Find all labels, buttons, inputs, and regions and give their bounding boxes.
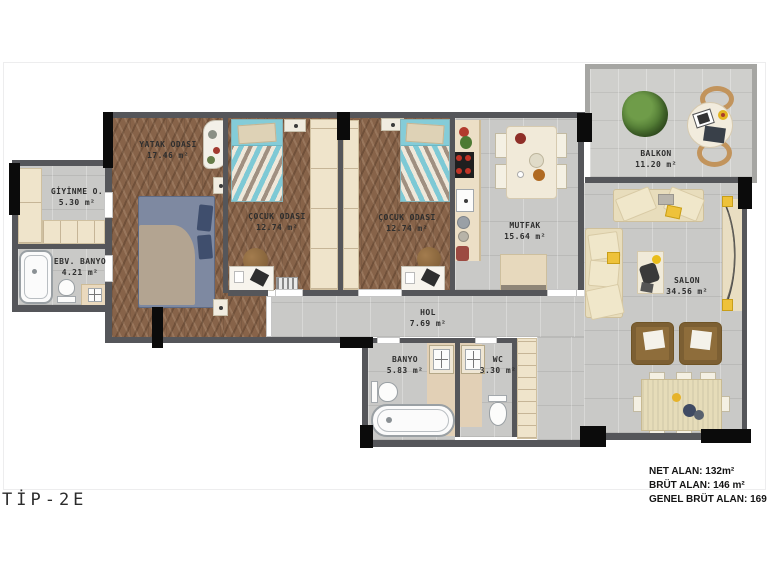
toilet xyxy=(58,279,75,296)
net-area: NET ALAN: 132m² xyxy=(649,465,768,479)
bed-pillow xyxy=(405,123,444,145)
column xyxy=(340,337,373,348)
door-opening xyxy=(275,289,303,297)
bathroom-sink xyxy=(429,345,454,374)
room-label-mutfak: MUTFAK 15.64 m² xyxy=(504,220,546,242)
wall xyxy=(338,117,343,293)
door-opening xyxy=(104,192,113,218)
room-name: MUTFAK xyxy=(504,220,546,231)
desk-papers xyxy=(640,282,653,293)
room-name: GİYİNME O. xyxy=(51,186,103,197)
wall xyxy=(343,290,358,296)
column xyxy=(738,177,752,209)
flower-pot xyxy=(457,127,473,151)
balcony-table xyxy=(687,102,733,148)
room-name: ÇOCUK ODASI xyxy=(378,212,435,223)
burner xyxy=(456,155,462,161)
nightstand xyxy=(213,299,228,316)
wall xyxy=(402,290,455,296)
wall xyxy=(15,244,110,249)
burner xyxy=(456,168,462,174)
door-opening xyxy=(377,337,400,344)
dresser-decor xyxy=(207,156,215,164)
plan-type-label: TİP-2E xyxy=(2,490,87,510)
toilet-tank xyxy=(371,381,378,403)
laptop xyxy=(703,126,726,144)
desk xyxy=(229,266,274,291)
balcony-wall xyxy=(585,64,590,117)
faucet-cross xyxy=(467,359,480,360)
wall xyxy=(303,290,343,296)
wall xyxy=(12,160,111,166)
sofa-cushion xyxy=(615,186,657,222)
room-label-salon: SALON 34.56 m² xyxy=(666,275,708,297)
bowl xyxy=(515,133,526,144)
room-area: 4.21 m² xyxy=(54,267,106,278)
wall xyxy=(223,117,228,293)
genel-brut-area: GENEL BRÜT ALAN: 169 m² xyxy=(649,493,768,507)
single-bed xyxy=(231,119,283,202)
room-label-balkon: BALKON 11.20 m² xyxy=(635,148,677,170)
kitchen-island xyxy=(500,254,547,291)
room-area: 5.83 m² xyxy=(387,365,424,376)
room-name: BANYO xyxy=(387,354,424,365)
bathtub xyxy=(371,404,455,437)
faucet-cross xyxy=(435,359,448,360)
toilet-tank xyxy=(488,395,507,402)
kitchen-jar xyxy=(458,231,469,242)
area-summary: NET ALAN: 132m² BRÜT ALAN: 146 m² GENEL … xyxy=(649,465,768,507)
drain xyxy=(32,269,37,274)
laptop xyxy=(421,268,440,287)
room-label-cocuk-odasi-1: ÇOCUK ODASI 12.74 m² xyxy=(248,211,305,233)
wall xyxy=(362,440,593,447)
room-area: 5.30 m² xyxy=(51,197,103,208)
door-opening xyxy=(266,296,272,337)
room-name: EBV. BANYO xyxy=(54,256,106,267)
desk-lamp xyxy=(652,255,661,264)
closet xyxy=(18,168,42,244)
room-label-giyinme: GİYİNME O. 5.30 m² xyxy=(51,186,103,208)
room-area: 12.74 m² xyxy=(378,223,435,234)
column xyxy=(152,307,163,348)
room-name: HOL xyxy=(410,307,447,318)
hall-cabinet xyxy=(517,338,537,439)
dresser-decor xyxy=(213,147,220,154)
bed-pillow xyxy=(237,123,276,145)
toilet-tank xyxy=(57,296,76,303)
work-desk xyxy=(637,251,664,294)
frame-photo xyxy=(697,113,710,125)
room-area: 3.30 m² xyxy=(480,365,517,376)
potted-plant xyxy=(622,91,668,137)
flower xyxy=(718,110,728,120)
wall xyxy=(578,118,584,290)
room-name: WC xyxy=(480,354,517,365)
room-area: 34.56 m² xyxy=(666,286,708,297)
room-area: 17.46 m² xyxy=(139,150,196,161)
room-name: BALKON xyxy=(635,148,677,159)
wall-shelf xyxy=(284,119,306,132)
side-table xyxy=(658,194,674,205)
notebook xyxy=(234,271,244,283)
wall xyxy=(450,117,455,293)
burner xyxy=(465,155,471,161)
yellow-decor xyxy=(722,196,733,207)
wall xyxy=(400,338,475,343)
column xyxy=(577,113,592,142)
toilet xyxy=(378,382,398,402)
stove xyxy=(453,152,474,178)
sink-basin xyxy=(88,288,102,302)
armchair xyxy=(631,322,674,365)
bathtub-inner xyxy=(24,255,48,299)
faucet-cross xyxy=(89,294,101,295)
dining-table xyxy=(641,379,722,431)
closet xyxy=(42,220,105,244)
fruit-bowl xyxy=(533,169,545,181)
wardrobe xyxy=(343,120,359,290)
room-label-wc: WC 3.30 m² xyxy=(480,354,517,376)
balcony-wall xyxy=(752,64,757,183)
cup xyxy=(517,171,524,178)
brut-area: BRÜT ALAN: 146 m² xyxy=(649,479,768,493)
wall xyxy=(455,343,460,437)
armchair-pillow xyxy=(690,330,712,350)
chaise-sofa xyxy=(585,228,623,318)
plant-leaves xyxy=(460,136,472,149)
drain xyxy=(386,417,392,423)
laptop xyxy=(250,268,269,287)
kitchen-table xyxy=(506,126,557,199)
room-name: SALON xyxy=(666,275,708,286)
room-label-yatak-odasi: YATAK ODASI 17.46 m² xyxy=(139,139,196,161)
notebook xyxy=(405,272,415,284)
room-label-cocuk-odasi-2: ÇOCUK ODASI 12.74 m² xyxy=(378,212,435,234)
kitchen-sink xyxy=(456,189,474,212)
burner xyxy=(465,168,471,174)
room-area: 15.64 m² xyxy=(504,231,546,242)
floor-plan: YATAK ODASI 17.46 m² GİYİNME O. 5.30 m² … xyxy=(0,0,768,576)
door-opening xyxy=(358,289,402,297)
bed-throw-blanket xyxy=(139,225,195,305)
room-area: 11.20 m² xyxy=(635,159,677,170)
plate xyxy=(529,153,544,168)
door-opening xyxy=(547,289,577,297)
dresser-decor xyxy=(208,130,217,139)
room-name: ÇOCUK ODASI xyxy=(248,211,305,222)
armchair xyxy=(679,322,722,365)
flower-center xyxy=(721,113,725,117)
table-decor xyxy=(672,393,681,402)
column xyxy=(701,429,751,443)
yellow-pillow xyxy=(665,205,682,220)
column xyxy=(580,426,606,447)
faucet-cross xyxy=(94,289,95,301)
bathroom-sink xyxy=(81,284,108,306)
bed-pillow xyxy=(197,204,214,231)
wall xyxy=(228,290,268,296)
room-label-banyo: BANYO 5.83 m² xyxy=(387,354,424,376)
single-bed xyxy=(400,119,450,202)
door-opening xyxy=(475,337,497,344)
floor-corridor xyxy=(223,293,268,337)
yellow-decor xyxy=(722,299,733,311)
column xyxy=(360,425,373,448)
double-bed xyxy=(138,196,215,308)
armchair-pillow xyxy=(643,330,665,351)
wall xyxy=(585,177,752,183)
toilet xyxy=(489,402,507,426)
room-label-hol: HOL 7.69 m² xyxy=(410,307,447,329)
yellow-pillow xyxy=(607,252,620,264)
room-label-ebv-banyo: EBV. BANYO 4.21 m² xyxy=(54,256,106,278)
wall xyxy=(455,290,547,296)
balcony-wall xyxy=(585,64,757,69)
bathtub xyxy=(19,250,53,304)
wall xyxy=(12,305,110,312)
dining-chair xyxy=(721,396,730,412)
sofa-chaise xyxy=(585,284,624,320)
desk xyxy=(401,266,445,292)
kitchen-jar xyxy=(457,216,470,229)
bed-pillow xyxy=(197,234,213,259)
table-decor xyxy=(694,410,704,420)
column xyxy=(337,112,350,140)
wardrobe xyxy=(310,119,338,290)
room-area: 7.69 m² xyxy=(410,318,447,329)
room-name: YATAK ODASI xyxy=(139,139,196,150)
column xyxy=(9,163,20,215)
wall xyxy=(105,337,362,343)
room-area: 12.74 m² xyxy=(248,222,305,233)
kitchen-appliance xyxy=(456,246,469,261)
column xyxy=(103,112,113,168)
wall xyxy=(742,183,747,440)
